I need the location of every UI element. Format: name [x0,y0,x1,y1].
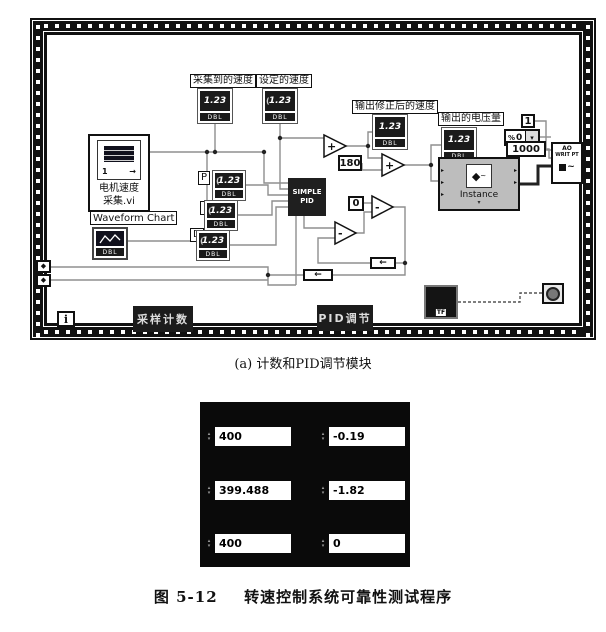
feedback-node-1[interactable]: ← [370,257,396,269]
waveform-chart-terminal[interactable]: DBL [92,227,128,260]
spinner-icon[interactable]: ▴▾ [319,429,327,445]
spinner-icon[interactable]: ▴▾ [319,536,327,552]
pid-block-line2: PID [300,197,314,206]
corrected-speed-terminal[interactable]: 1.23 DBL [372,114,408,150]
wave-glyph: ~ [480,172,486,180]
datatype-tag: DBL [200,113,230,121]
pid-tab-text: PID调节 [318,310,371,326]
simple-pid-block[interactable]: SIMPLE PID [288,178,326,216]
numeric-field-measured-speed[interactable]: 399.488 [215,481,291,500]
numeric-chip: 1.23 [444,130,474,150]
subvi-name-line2: 采集.vi [90,195,148,208]
spinner-down: ▾ [322,437,325,442]
datatype-tag: DBL [199,250,227,258]
acquired-speed-label: 采集到的速度 [190,74,256,88]
subcaption-text: (a) 计数和PID调节模块 [234,357,371,372]
waveform-icon [96,231,124,246]
set-speed-terminal[interactable]: ( 1.23 DBL [262,88,298,124]
stop-boolean-terminal[interactable]: TF [424,285,458,319]
analog-output-icon: ~ [553,162,581,172]
shift-register-left-1[interactable]: ◆ [36,260,51,273]
loop-condition-terminal[interactable] [542,283,564,304]
channel-number: 1 [102,167,108,177]
constant-0[interactable]: 0 [348,196,364,211]
numeric-field-error-3[interactable]: 0 [329,534,405,553]
spinner-down: ▾ [208,491,211,496]
spinner-down: ▾ [208,437,211,442]
continue-icon [546,287,560,301]
control-spinner-icon: ( [266,97,270,106]
field-value: 399.488 [219,484,269,497]
pwm-icon: ◆~ [466,164,492,188]
loop-iteration-terminal[interactable]: i [57,311,75,327]
output-voltage-label: 输出的电压量 [438,112,504,126]
field-value: 400 [219,430,242,443]
p-gain-terminal[interactable]: ( 1.23 DBL [212,170,246,201]
waveform-chart-text: Waveform Chart [93,213,174,224]
constant-180-value: 180 [340,158,361,169]
field-value: -0.19 [333,430,365,443]
constant-1-value: 1 [525,116,532,127]
control-spinner-icon: ( [216,176,220,185]
numeric-chip: 1.23 [200,91,230,111]
iteration-label: i [64,313,68,326]
ao-line2: WRIT PT [553,152,581,159]
shift-register-icon: ◆ [41,263,46,270]
waveform-chart-label: Waveform Chart [90,211,177,225]
loop-border-left [33,21,43,337]
numeric-chip: 1.23 [218,176,240,186]
constant-0-value: 0 [353,198,360,209]
probe-icon: → [129,167,136,177]
boolean-type-tag: TF [436,309,446,316]
shift-register-icon: ◆ [41,277,46,284]
numeric-chip: 1.23 [375,117,405,137]
constant-1000[interactable]: 1000 [506,141,546,157]
spinner-icon[interactable]: ▴▾ [205,429,213,445]
figure-number: 图 5-12 [154,588,218,606]
constant-1000-value: 1000 [512,144,540,155]
sine-glyph: ~ [567,162,575,172]
p-text: P [201,172,207,183]
subvi-name-line1: 电机速度 [90,182,148,195]
numeric-field-error-1[interactable]: -0.19 [329,427,405,446]
control-spinner-icon: ( [208,206,212,215]
feedback-node-2[interactable]: ← [303,269,333,281]
datatype-tag: DBL [265,113,295,121]
p-gain-label: P [198,171,210,185]
motor-speed-subvi[interactable]: 1 → 电机速度 采集.vi [88,134,150,212]
corrected-speed-text: 输出修正后的速度 [355,101,435,112]
loop-border-bottom [33,327,593,337]
sampling-tab-text: 采样计数 [137,311,189,327]
frame-tab-pid: PID调节 [317,305,373,331]
i-gain-terminal[interactable]: ( 1.23 DBL [204,200,238,231]
figure-caption: 图 5-12 转速控制系统可靠性测试程序 [0,586,606,607]
shift-register-left-2[interactable]: ◆ [36,274,51,287]
datatype-tag: DBL [207,220,235,228]
field-value: -1.82 [333,484,365,497]
feedback-arrow-icon: ← [314,271,322,280]
subfigure-caption: (a) 计数和PID调节模块 [0,353,606,372]
control-spinner-icon: ( [200,236,204,245]
constant-1[interactable]: 1 [521,114,535,128]
datatype-tag: DBL [215,190,243,198]
pid-block-line1: SIMPLE [293,188,322,197]
figure-title: 转速控制系统可靠性测试程序 [244,588,452,606]
cube-glyph: ◆ [472,170,480,183]
loop-border-right [583,21,593,337]
input-arrows-icon: ▸▸▸ [441,165,444,201]
numeric-chip: 1.23 [202,236,224,246]
spinner-down: ▾ [322,544,325,549]
output-voltage-text: 输出的电压量 [441,113,501,124]
spinner-icon[interactable]: ▴▾ [205,536,213,552]
field-value: 0 [333,537,341,550]
daq-card-icon: 1 → [97,140,141,180]
feedback-arrow-icon: ← [379,259,387,268]
numeric-field-error-2[interactable]: -1.82 [329,481,405,500]
numeric-field-target-speed[interactable]: 400 [215,534,291,553]
figure-page: + + - - ◆ ◆ i 1 → 电机速度 采集.vi Waveform Ch… [0,0,606,632]
frame-tab-sampling: 采样计数 [133,306,193,332]
spinner-icon[interactable]: ▴▾ [319,483,327,499]
set-speed-text: 设定的速度 [259,75,309,86]
numeric-chip: 1.23 [269,96,291,106]
acquired-speed-text: 采集到的速度 [193,75,253,86]
datatype-tag: DBL [96,248,124,256]
datatype-tag: DBL [375,139,405,147]
acquired-speed-terminal[interactable]: 1.23 DBL [197,88,233,124]
corrected-speed-label: 输出修正后的速度 [352,100,438,114]
expand-icon[interactable]: ▾ [440,200,518,205]
spinner-icon[interactable]: ▴▾ [205,483,213,499]
instance-express-vi[interactable]: ▸▸▸ ▸▸ ◆~ Instance ▾ [438,157,520,211]
numeric-field-set-speed[interactable]: 400 [215,427,291,446]
set-speed-label: 设定的速度 [256,74,312,88]
ao-write-node[interactable]: AO WRIT PT ~ [551,142,583,184]
spinner-down: ▾ [208,544,211,549]
field-value: 400 [219,537,242,550]
output-arrows-icon: ▸▸ [514,165,517,189]
d-gain-terminal[interactable]: ( 1.23 DBL [196,230,230,261]
loop-border-top [33,21,593,31]
spinner-down: ▾ [322,491,325,496]
numeric-chip: 1.23 [210,206,232,216]
constant-180[interactable]: 180 [338,155,362,171]
